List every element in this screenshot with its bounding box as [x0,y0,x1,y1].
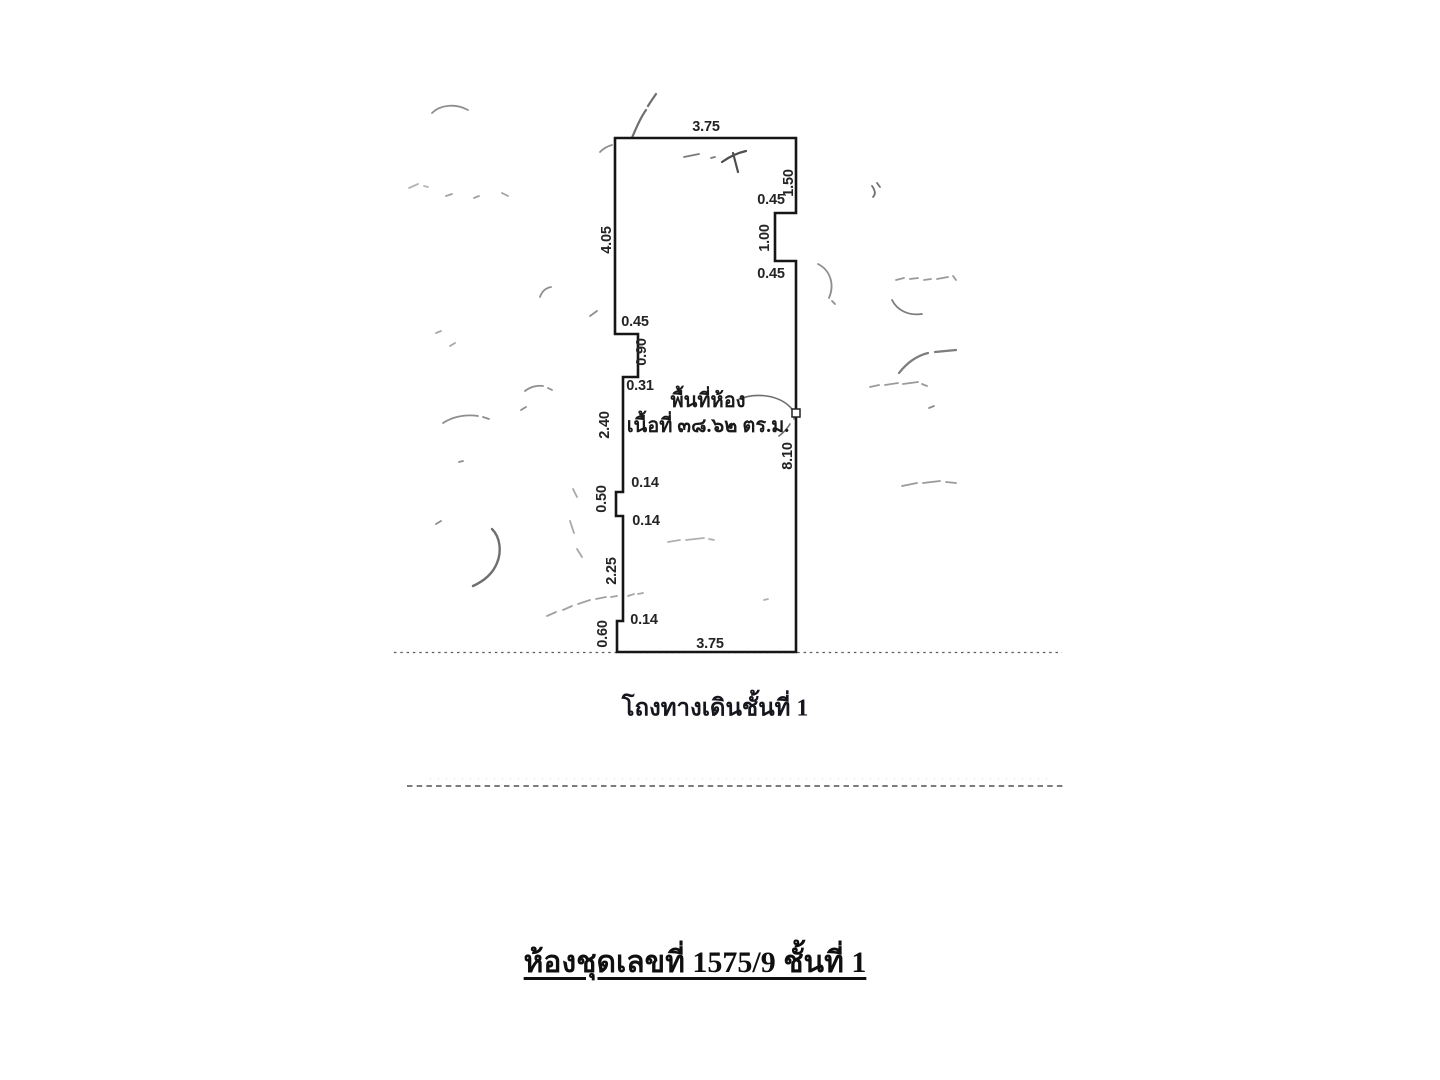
scan-artifact [446,193,508,198]
scan-artifact [590,311,597,316]
scan-artifact [899,350,956,373]
dimension-label-bottom-width: 3.75 [696,637,723,652]
dimension-label-left-bump-top: 0.14 [631,476,658,491]
dimension-label-left-middle: 2.40 [598,411,613,438]
scan-artifact [870,382,927,387]
dimension-label-top-width: 3.75 [692,120,719,135]
scan-artifact [436,521,441,524]
dimension-label-right-lower: 8.10 [781,442,796,469]
room-area-label: พื้นที่ห้อง เนื้อที่ ๓๘.๖๒ ตร.ม. [627,389,790,439]
dimension-label-left-upper: 4.05 [600,226,615,253]
scan-artifact [818,264,835,304]
dimension-label-right-notch-top: 0.45 [757,193,784,208]
scan-artifact [547,596,617,616]
scan-artifact [764,599,768,600]
dimension-label-right-notch-depth: 1.00 [758,224,773,251]
scan-artifact [892,300,922,314]
scan-artifact [896,276,956,280]
scanned-floor-plan-page: 3.75 1.50 0.45 1.00 0.45 8.10 4.05 0.45 … [0,0,1440,1080]
dimension-label-left-bottom: 0.60 [596,620,611,647]
dimension-label-left-bottom-step: 0.14 [630,613,657,628]
scan-artifact [902,481,956,486]
dimension-label-left-bump-height: 0.50 [595,485,610,512]
dimension-label-left-step-top: 0.45 [621,315,648,330]
scan-artifact [409,184,428,188]
scan-artifact [600,145,612,152]
scan-artifact [521,407,526,410]
dimension-label-left-step-height: 0.90 [635,338,650,365]
scan-artifact [459,461,463,462]
floor-plan-drawing [0,0,1440,1080]
wall-node-marker [792,409,800,417]
room-area-line1: พื้นที่ห้อง [627,389,790,414]
scan-artifact [436,331,455,346]
room-area-line2: เนื้อที่ ๓๘.๖๒ ตร.ม. [627,414,790,439]
scan-artifact [872,183,880,197]
scan-artifact [525,386,552,391]
scan-artifact [570,489,582,557]
scan-artifact [443,415,489,423]
dimension-label-left-bump-bottom: 0.14 [632,514,659,529]
scan-artifact [540,287,551,297]
scan-artifact [929,406,934,408]
scan-artifact [631,94,656,140]
scan-artifact [473,529,500,586]
dimension-label-right-notch-bottom: 0.45 [757,267,784,282]
corridor-label: โถงทางเดินชั้นที่ 1 [622,695,809,724]
dimension-label-left-lower: 2.25 [605,557,620,584]
scan-artifact [432,106,468,113]
page-title: ห้องชุดเลขที่ 1575/9 ชั้นที่ 1 [524,945,867,981]
